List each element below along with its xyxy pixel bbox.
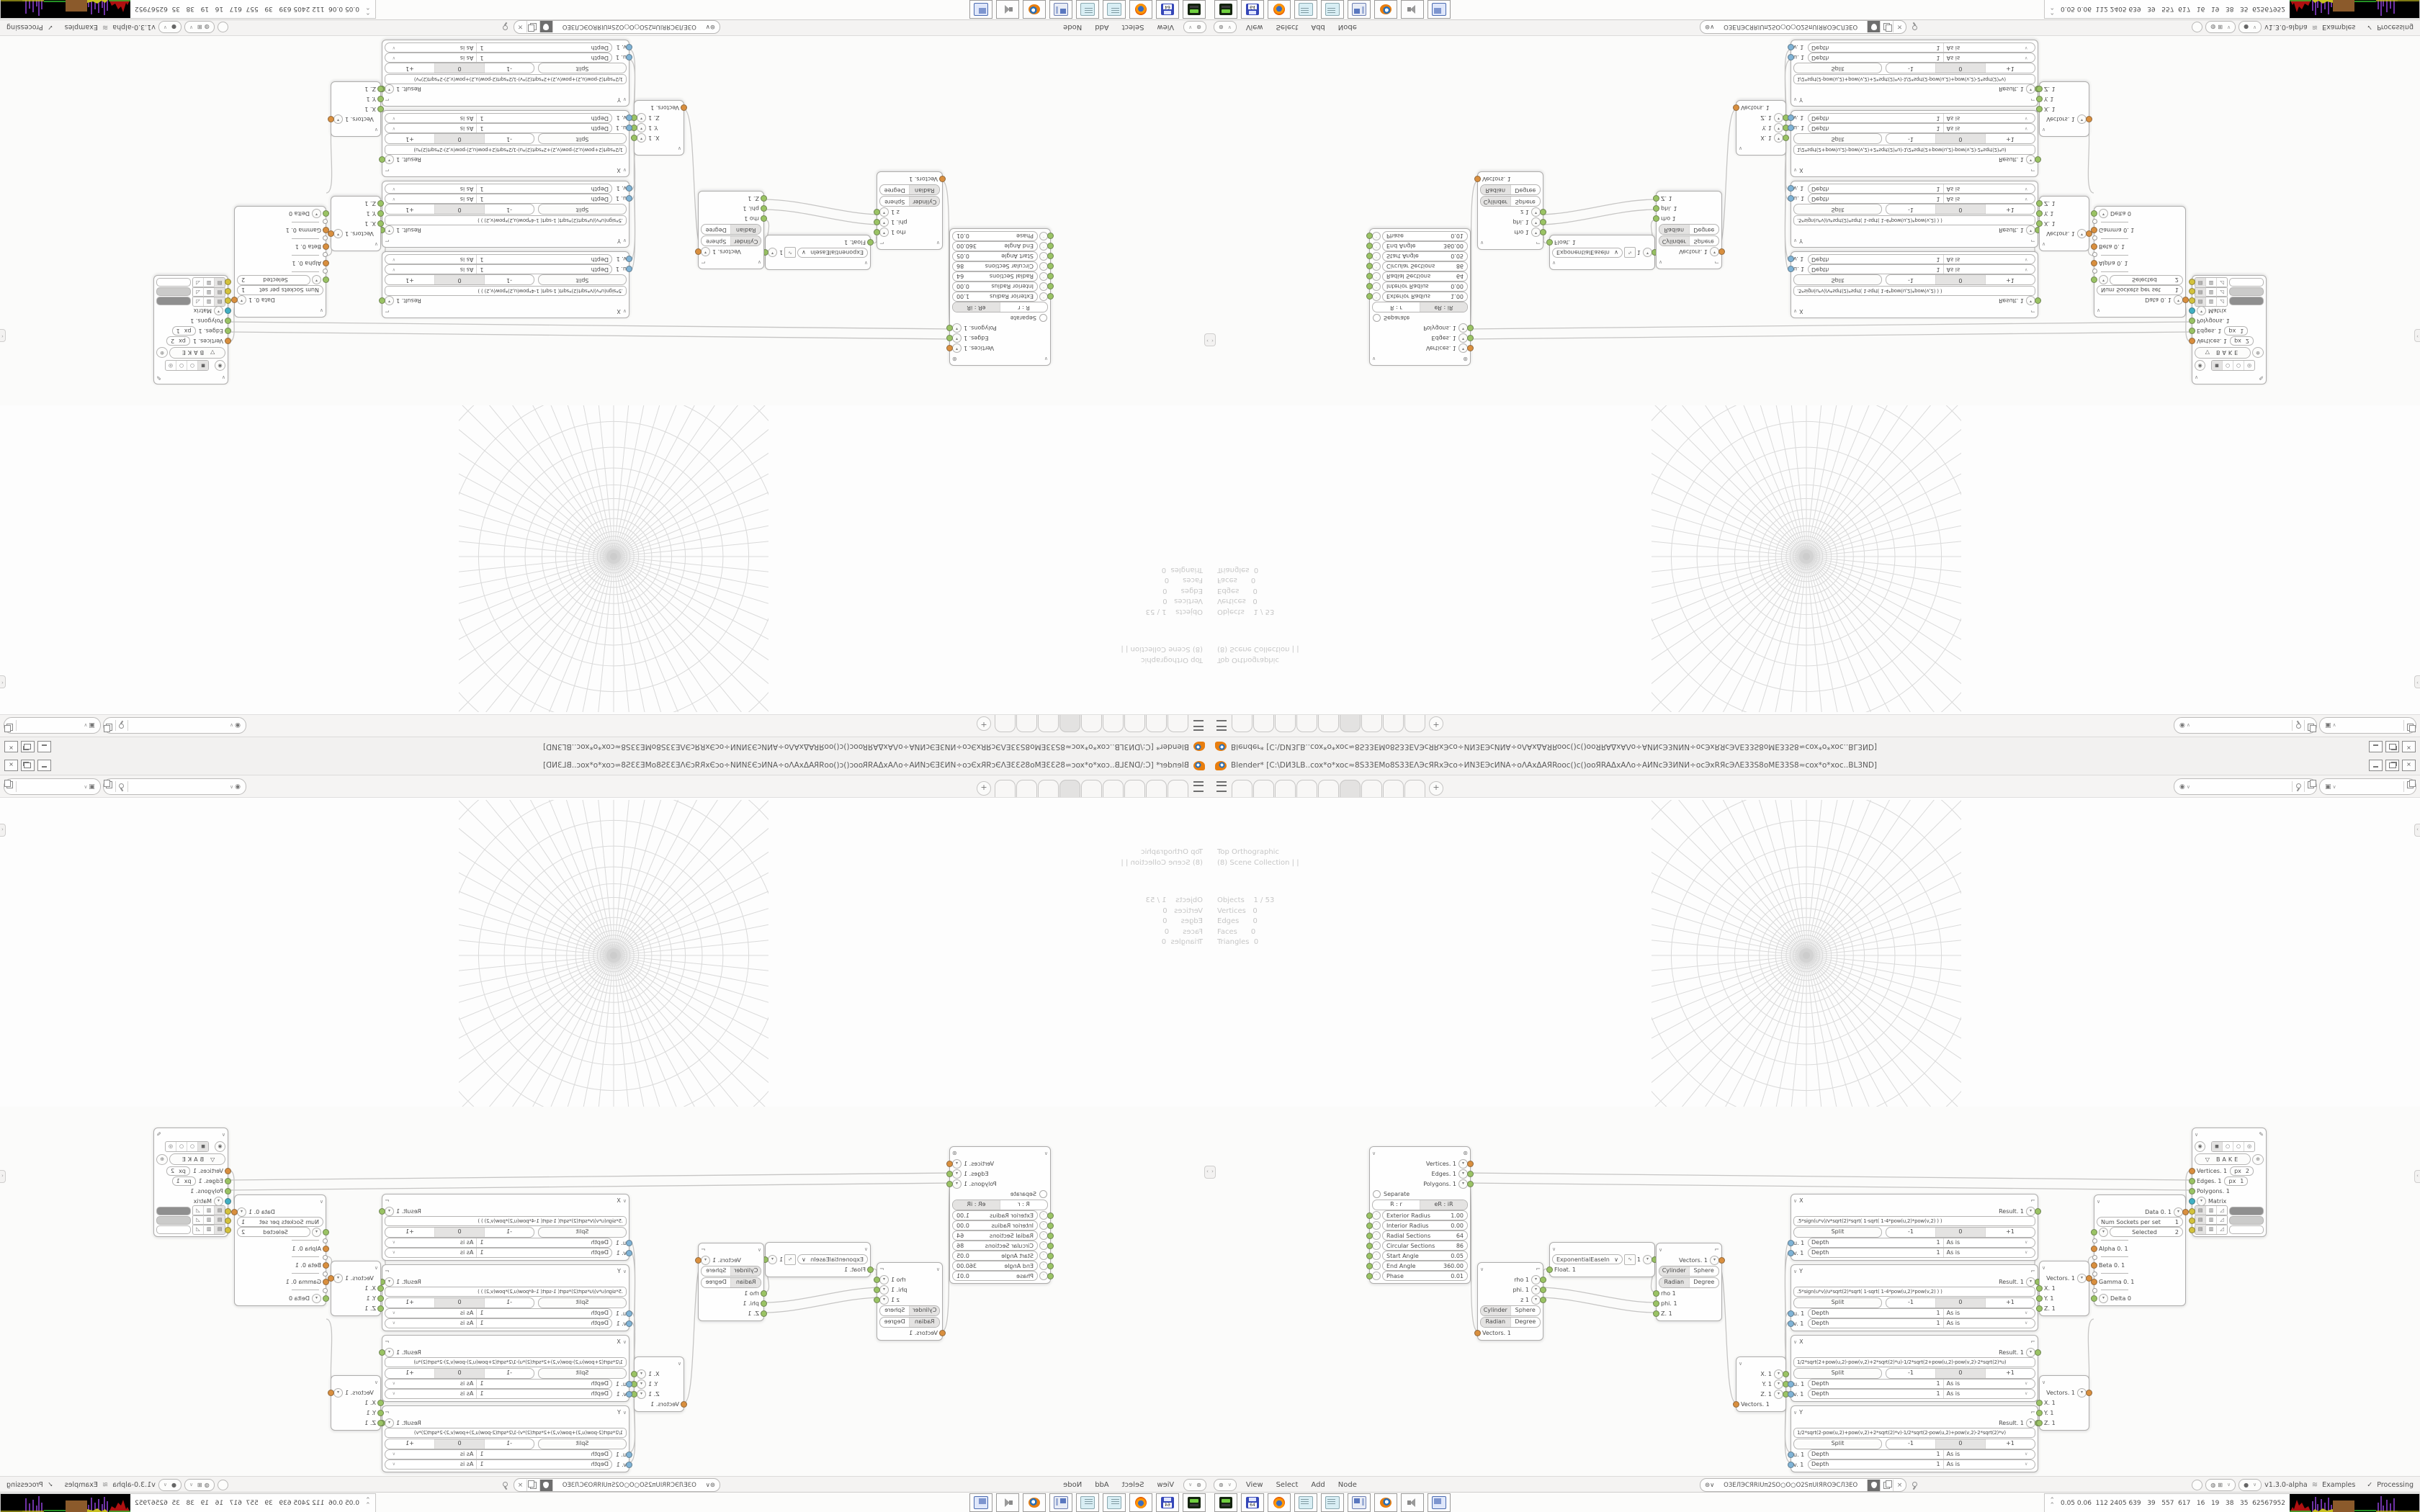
node-sidebar-toggle[interactable]: ‹ [2414,329,2420,342]
depth-selector[interactable]: Depth1As is∨ [385,53,612,63]
workspace-tab[interactable] [1296,780,1317,797]
taskbar-icon-floppy-64[interactable]: 64 [1156,0,1179,19]
color-swatch[interactable] [156,279,191,287]
segmented-control[interactable]: RadianDegree [1480,185,1541,196]
menu-hamburger-icon[interactable] [1193,781,1204,792]
taskbar-icon-image-viewer[interactable] [1348,0,1371,19]
depth-selector[interactable]: Depth1As is∨ [1808,1389,2035,1399]
bake-settings-button[interactable]: ⊕ [2252,1154,2264,1165]
formula-input[interactable]: 1/2*sqrt(2-pow(u,2)+pow(v,2)+2*sqrt(2)*v… [1793,74,2035,84]
node-menu-node[interactable]: Node [1338,24,1357,32]
workspace-tab[interactable] [1232,715,1252,732]
px-field[interactable]: px1 [172,1176,196,1186]
viewport-3d[interactable]: Top Orthographic (8) Scene Collection | … [0,798,1210,1107]
node-menu-add[interactable]: Add [1095,1481,1108,1489]
workspace-tab[interactable] [1318,780,1339,797]
workspace-tab[interactable] [1103,780,1124,797]
wrap-selector[interactable]: -10+1 [385,204,534,215]
formula-input[interactable]: .5*sign(u*v)/u*sqrt(2)*sqrt( 1-sqrt( 1-4… [385,215,627,225]
formula-input[interactable]: 1/2*sqrt(2+pow(u,2)-pow(v,2)+2*sqrt(2)*u… [385,145,627,155]
formula-input[interactable]: 1/2*sqrt(2+pow(u,2)-pow(v,2)+2*sqrt(2)*u… [1793,1357,2035,1367]
segmented-control[interactable]: CylinderSphere [879,197,940,207]
workspace-tab[interactable] [1016,780,1037,797]
number-field-phase[interactable]: Phase0.01 [952,1271,1038,1281]
bake-settings-button[interactable]: ⊕ [156,348,168,359]
taskbar-icon-notepad[interactable] [1103,1493,1126,1512]
unlink-tree-button[interactable]: × [1893,1480,1906,1491]
socket-menu-button[interactable]: ▾ [879,1275,889,1284]
formula-input[interactable]: 1/2*sqrt(2-pow(u,2)+pow(v,2)+2*sqrt(2)*v… [385,74,627,84]
node-vector-out[interactable]: ∨X. 1▾Y. 1▾Z. 1▾Vectors. 1 [634,100,684,156]
color-swatch[interactable] [2229,288,2264,297]
depth-selector[interactable]: Depth1As is∨ [385,113,612,123]
split-button[interactable]: Split [538,1227,627,1238]
bake-button[interactable]: ▽BAKE [2195,1153,2251,1165]
depth-selector[interactable]: Depth1As is∨ [1808,254,2035,264]
color-swatch[interactable] [156,288,191,297]
number-field-start-angle[interactable]: Start Angle0.05 [952,1251,1038,1261]
depth-selector[interactable]: Depth1As is∨ [385,123,612,133]
node-formula-y1[interactable]: ∨Y⌐Result. 1▾.5*sign(u*v)/u*sqrt(2)*sqrt… [1791,1264,2038,1331]
number-field-start-angle[interactable]: Start Angle0.05 [1382,1251,1468,1261]
node-vector-in-1[interactable]: ∨Vectors. 1▾X. 1Y. 1Z. 1 [2039,196,2089,251]
node-easing[interactable]: ∨ExponentialEaseIn∨∿1▾Float. 1 [765,235,871,270]
curve-preview-button[interactable]: ∿ [784,248,796,258]
socket-menu-button[interactable]: ▾ [879,1295,889,1305]
socket-menu-button[interactable]: ▾ [637,134,646,143]
socket-menu-button[interactable]: ▾ [385,1418,394,1428]
node-snap-selector[interactable]: ◍⊞∨ [2205,1479,2236,1491]
socket-menu-button[interactable]: ▾ [385,156,394,165]
node-easing[interactable]: ∨ExponentialEaseIn∨∿1▾Float. 1 [1549,235,1655,270]
socket-menu-button[interactable]: ▾ [214,1197,223,1206]
toggle-separate[interactable]: Separate [1372,313,1468,323]
depth-selector[interactable]: Depth1As is∨ [385,1379,612,1389]
node-editor[interactable]: › ‹ ∨⊛Vertices. 1▾Edges. 1▾Polygons. 1▾S… [1210,36,2420,392]
node-vector-out[interactable]: ∨X. 1▾Y. 1▾Z. 1▾Vectors. 1 [1736,100,1786,156]
duplicate-tree-button[interactable] [1880,22,1893,33]
display-mode-buttons[interactable]: ◼○○◎ [2211,361,2255,372]
socket-menu-button[interactable]: ▾ [385,85,394,94]
new-scene-button[interactable] [104,781,116,792]
workspace-tab[interactable] [1253,715,1274,732]
new-layer-button[interactable] [2403,781,2416,792]
node-polar-in[interactable]: ∨⌐Vectors. 1▾CylinderSphereRadianDegreer… [698,191,764,269]
node-easing[interactable]: ∨ExponentialEaseIn∨∿1▾Float. 1 [1549,1242,1655,1277]
workspace-tab[interactable] [1340,780,1361,797]
node-input-switch[interactable]: ∨Data 0. 1▾Num Sockets per set1▾Selected… [2094,206,2186,318]
socket-menu-button[interactable]: ▾ [2099,1294,2108,1303]
node-vector-in-2[interactable]: ∨Vectors. 1▾X. 1Y. 1Z. 1 [2039,81,2089,137]
wrap-selector[interactable]: -10+1 [1886,275,2035,286]
menu-hamburger-icon[interactable] [1216,781,1227,792]
node-menu-select[interactable]: Select [1122,24,1144,32]
workspace-tab[interactable] [1081,780,1102,797]
number-field-end-angle[interactable]: End Angle360.00 [952,1261,1038,1271]
monitor-expand-icon[interactable]: ⌃⌃ [365,1498,371,1508]
node-toolbar-toggle[interactable]: › [1210,333,1216,346]
node-vector-in-2[interactable]: ∨Vectors. 1▾X. 1Y. 1Z. 1 [331,1375,381,1431]
node-vector-in-1[interactable]: ∨Vectors. 1▾X. 1Y. 1Z. 1 [331,196,381,251]
socket-menu-button[interactable]: ▾ [214,307,223,316]
depth-selector[interactable]: Depth1As is∨ [1808,1318,2035,1328]
px-field[interactable]: px1 [2224,327,2248,336]
segmented-control[interactable]: RadianDegree [1659,1277,1719,1288]
socket-menu-button[interactable]: ▾ [312,1294,321,1303]
unlink-tree-button[interactable]: × [1893,22,1906,33]
number-field-interior-radius[interactable]: Interior Radius0.00 [952,282,1038,292]
depth-selector[interactable]: Depth1As is∨ [1808,53,2035,63]
viewer-activate-button[interactable]: ◉ [215,1141,225,1152]
number-field-phase[interactable]: Phase0.01 [952,231,1038,241]
node-editor-type-button[interactable]: ⊛∨ [1214,22,1237,34]
wrap-selector[interactable]: -10+1 [1886,1439,2035,1449]
monitor-expand-icon[interactable]: ⌃⌃ [2049,1498,2055,1508]
examples-menu[interactable]: Examples [65,24,98,32]
taskbar-icon-image-viewer[interactable] [1049,1493,1072,1512]
toggle-separate[interactable]: Separate [952,313,1048,323]
node-formula-x1[interactable]: ∨X⌐Result. 1▾.5*sign(u*v)/v*sqrt(2)*sqrt… [382,251,629,318]
node-formula-y2[interactable]: ∨Y⌐Result. 1▾1/2*sqrt(2-pow(u,2)+pow(v,2… [1791,40,2038,107]
socket-menu-button[interactable]: ▾ [385,226,394,235]
node-vector-in-1[interactable]: ∨Vectors. 1▾X. 1Y. 1Z. 1 [2039,1261,2089,1316]
segmented-control[interactable]: R : reR : iR [952,302,1048,313]
split-button[interactable]: Split [1793,204,1882,215]
workspace-tab[interactable] [1124,780,1145,797]
depth-selector[interactable]: Depth1As is∨ [385,1248,612,1258]
depth-selector[interactable]: Depth1As is∨ [1808,1248,2035,1258]
wrap-selector[interactable]: -10+1 [385,1368,534,1379]
workspace-tab[interactable] [995,715,1016,732]
curve-preview-button[interactable]: ∿ [1624,248,1636,258]
pin-icon[interactable] [2292,781,2304,792]
node-vector-out[interactable]: ∨X. 1▾Y. 1▾Z. 1▾Vectors. 1 [634,1356,684,1412]
depth-selector[interactable]: Depth1As is∨ [385,1449,612,1459]
workspace-tab[interactable] [1275,780,1296,797]
taskbar-icon-display[interactable] [969,0,992,19]
viewport-sidebar-toggle[interactable]: ‹ [2414,824,2420,837]
wrap-selector[interactable]: -10+1 [1886,1368,2035,1379]
number-field-interior-radius[interactable]: Interior Radius0.00 [1382,1220,1468,1230]
add-workspace-button[interactable]: + [977,781,991,796]
node-menu-add[interactable]: Add [1095,24,1108,32]
number-field-phase[interactable]: Phase0.01 [1382,231,1468,241]
node-sidebar-toggle[interactable]: ‹ [0,1170,6,1183]
number-field-selected[interactable]: Selected2 [2110,1227,2183,1237]
socket-menu-button[interactable]: ▾ [637,1380,646,1389]
workspace-tab[interactable] [1168,715,1188,732]
pin-icon[interactable] [116,781,128,792]
formula-input[interactable]: 1/2*sqrt(2+pow(u,2)-pow(v,2)+2*sqrt(2)*u… [1793,145,2035,155]
viewer-activate-button[interactable]: ◉ [2195,361,2205,372]
socket-menu-button[interactable]: ▾ [333,1388,343,1398]
socket-menu-button[interactable]: ▾ [637,1369,646,1379]
node-toolbar-toggle[interactable]: › [1210,1166,1216,1179]
node-ring[interactable]: ∨⊛Vertices. 1▾Edges. 1▾Polygons. 1▾Separ… [1369,1146,1471,1284]
formula-input[interactable]: .5*sign(u*v)/v*sqrt(2)*sqrt( 1-sqrt( 1-4… [1793,1216,2035,1226]
depth-selector[interactable]: Depth1As is∨ [385,264,612,274]
color-mode-buttons[interactable]: ▤▥◿ [192,1224,225,1235]
workspace-tab[interactable] [1059,780,1080,797]
workspace-tab[interactable] [1383,715,1404,732]
number-field-num-sockets[interactable]: Num Sockets per set1 [2097,1217,2183,1227]
split-button[interactable]: Split [538,134,627,145]
number-field-end-angle[interactable]: End Angle360.00 [1382,1261,1468,1271]
wrap-selector[interactable]: -10+1 [385,1297,534,1308]
depth-selector[interactable]: Depth1As is∨ [1808,1308,2035,1318]
workspace-tab[interactable] [1124,715,1145,732]
segmented-control[interactable]: R : reR : iR [952,1200,1048,1210]
color-swatch[interactable] [2229,279,2264,287]
wrap-selector[interactable]: -10+1 [385,63,534,74]
fake-user-button[interactable] [1867,1480,1880,1491]
workspace-tab[interactable] [1103,715,1124,732]
node-polar-in[interactable]: ∨⌐Vectors. 1▾CylinderSphereRadianDegreer… [1656,1243,1722,1321]
node-toolbar-toggle[interactable]: › [1204,1166,1210,1179]
segmented-control[interactable]: CylinderSphere [879,1305,940,1316]
workspace-tab[interactable] [1038,780,1059,797]
segmented-control[interactable]: CylinderSphere [1480,197,1541,207]
formula-input[interactable]: .5*sign(u*v)/u*sqrt(2)*sqrt( 1-sqrt( 1-4… [1793,215,2035,225]
new-layer-button[interactable] [4,720,17,731]
bake-settings-button[interactable]: ⊕ [156,1154,168,1165]
taskbar-icon-image-viewer[interactable] [1049,0,1072,19]
socket-menu-button[interactable]: ▾ [312,276,321,285]
socket-menu-button[interactable]: ▾ [879,1285,889,1295]
split-button[interactable]: Split [1793,63,1882,74]
taskbar-icon-notepad[interactable] [1076,0,1099,19]
taskbar-icon-firefox[interactable] [1129,0,1152,19]
scene-selector[interactable]: ◉∨ [103,778,246,795]
taskbar-icon-display[interactable] [1428,1493,1451,1512]
depth-selector[interactable]: Depth1As is∨ [1808,194,2035,204]
taskbar-icon-notepad[interactable] [1294,0,1317,19]
wrap-selector[interactable]: -10+1 [1886,1297,2035,1308]
depth-selector[interactable]: Depth1As is∨ [1808,1238,2035,1248]
split-button[interactable]: Split [1793,1439,1882,1449]
number-field-num-sockets[interactable]: Num Sockets per set1 [237,285,323,295]
node-menu-view[interactable]: View [1246,24,1263,32]
node-formula-x2[interactable]: ∨X⌐Result. 1▾1/2*sqrt(2+pow(u,2)-pow(v,2… [382,110,629,177]
add-workspace-button[interactable]: + [1429,781,1443,796]
node-formula-y1[interactable]: ∨Y⌐Result. 1▾.5*sign(u*v)/u*sqrt(2)*sqrt… [382,1264,629,1331]
socket-menu-button[interactable]: ▾ [879,228,889,238]
restore-button[interactable] [2385,741,2399,752]
node-tree-selector[interactable]: ⊚∨ ОЗЕЛЭСЯRIUπ2SO○O○O2SπUIЯRОЭСЛЗЕО × [1700,20,1906,34]
taskbar-icon-system-monitor[interactable] [1183,0,1206,19]
viewport-3d[interactable]: Top Orthographic (8) Scene Collection | … [1210,405,2420,714]
segmented-control[interactable]: R : reR : iR [1372,302,1468,313]
split-button[interactable]: Split [1793,1368,1882,1379]
node-viewer-draw[interactable]: ∨✎◉◼○○◎▽BAKE⊕Vertices. 1px2Edges. 1px1Po… [2192,1128,2267,1237]
depth-selector[interactable]: Depth1As is∨ [385,1308,612,1318]
segmented-control[interactable]: RadianDegree [879,1317,940,1328]
color-swatch[interactable] [2229,1207,2264,1215]
node-overlay-selector[interactable]: ●∨ [2238,22,2262,34]
segmented-control[interactable]: RadianDegree [1480,1317,1541,1328]
node-editor-type-button[interactable]: ⊛∨ [1214,1479,1237,1491]
color-mode-buttons[interactable]: ▤▥◿ [192,296,225,307]
pin-tree-icon[interactable] [503,24,508,32]
number-field-circular-sections[interactable]: Circular Sections86 [952,261,1038,271]
taskbar-icon-firefox[interactable] [1129,1493,1152,1512]
socket-menu-button[interactable]: ▾ [952,324,962,333]
processing-toggle[interactable]: Processing [6,24,43,32]
node-viewer-draw[interactable]: ∨✎◉◼○○◎▽BAKE⊕Vertices. 1px2Edges. 1px1Po… [153,275,228,384]
node-editor-type-button[interactable]: ⊛∨ [1183,22,1206,34]
taskbar-icon-system-monitor[interactable] [1214,1493,1237,1512]
node-viewer-draw[interactable]: ∨✎◉◼○○◎▽BAKE⊕Vertices. 1px2Edges. 1px1Po… [153,1128,228,1237]
number-field-radial-sections[interactable]: Radial Sections64 [952,271,1038,282]
viewlayer-selector[interactable]: ▣∨ [2319,778,2416,795]
taskbar-icon-floppy-64[interactable]: 64 [1156,1493,1179,1512]
workspace-tab[interactable] [1404,780,1425,797]
taskbar-icon-notepad[interactable] [1103,0,1126,19]
socket-menu-button[interactable]: ▾ [952,334,962,343]
taskbar-icon-notepad[interactable] [1321,1493,1344,1512]
depth-selector[interactable]: Depth1As is∨ [1808,42,2035,53]
taskbar-icon-speaker[interactable] [1401,0,1424,19]
depth-selector[interactable]: Depth1As is∨ [1808,123,2035,133]
node-editor-type-button[interactable]: ⊛∨ [1183,1479,1206,1491]
segmented-control[interactable]: CylinderSphere [701,236,761,247]
socket-menu-button[interactable]: ▾ [952,1169,962,1179]
taskbar-icon-speaker[interactable] [996,0,1019,19]
taskbar-icon-floppy-64[interactable]: 64 [1241,0,1264,19]
number-field-start-angle[interactable]: Start Angle0.05 [952,251,1038,261]
bake-button[interactable]: ▽BAKE [169,347,225,359]
depth-selector[interactable]: Depth1As is∨ [385,184,612,194]
number-field-phase[interactable]: Phase0.01 [1382,1271,1468,1281]
workspace-tab[interactable] [1232,780,1252,797]
node-ring[interactable]: ∨⊛Vertices. 1▾Edges. 1▾Polygons. 1▾Separ… [1369,228,1471,366]
curve-preview-button[interactable]: ∿ [784,1254,796,1265]
scene-selector[interactable]: ◉∨ [2174,778,2317,795]
workspace-tab[interactable] [1383,780,1404,797]
workspace-tab[interactable] [1318,715,1339,732]
examples-menu[interactable]: Examples [2322,24,2355,32]
node-formula-y1[interactable]: ∨Y⌐Result. 1▾.5*sign(u*v)/u*sqrt(2)*sqrt… [382,181,629,248]
socket-menu-button[interactable]: ▾ [385,1207,394,1216]
color-mode-buttons[interactable]: ▤▥◿ [2195,287,2228,297]
depth-selector[interactable]: Depth1As is∨ [1808,1459,2035,1470]
wrap-selector[interactable]: -10+1 [385,1439,534,1449]
socket-menu-button[interactable]: ▾ [2099,210,2108,219]
node-menu-select[interactable]: Select [1276,24,1299,32]
workspace-tab[interactable] [1340,715,1361,732]
wrap-selector[interactable]: -10+1 [1886,134,2035,145]
node-sidebar-toggle[interactable]: ‹ [2414,1170,2420,1183]
parent-tree-button[interactable] [2192,1480,2202,1490]
workspace-tab[interactable] [1361,780,1382,797]
taskbar-icon-display[interactable] [1428,0,1451,19]
workspace-tab[interactable] [1361,715,1382,732]
color-mode-buttons[interactable]: ▤▥◿ [2195,1224,2228,1235]
socket-menu-button[interactable]: ▾ [701,1256,710,1265]
node-polar-out[interactable]: ∨⌐rho 1▾phi. 1▾z 1▾CylinderSphereRadianD… [877,1262,943,1341]
minimize-button[interactable] [2369,760,2383,771]
node-ring[interactable]: ∨⊛Vertices. 1▾Edges. 1▾Polygons. 1▾Separ… [949,228,1051,366]
color-swatch[interactable] [156,1225,191,1234]
node-polar-in[interactable]: ∨⌐Vectors. 1▾CylinderSphereRadianDegreer… [1656,191,1722,269]
parent-tree-button[interactable] [2192,22,2202,33]
close-button[interactable]: × [2402,741,2416,752]
wrap-selector[interactable]: -10+1 [1886,63,2035,74]
socket-menu-button[interactable]: ▾ [312,210,321,219]
taskbar-icon-blender[interactable] [1023,1493,1046,1512]
number-field-selected[interactable]: Selected2 [237,275,310,285]
taskbar-icon-image-viewer[interactable] [1348,1493,1371,1512]
px-field[interactable]: px2 [2230,337,2254,346]
socket-menu-button[interactable]: ▾ [333,1274,343,1283]
number-field-exterior-radius[interactable]: Exterior Radius1.00 [1382,292,1468,302]
node-vector-in-2[interactable]: ∨Vectors. 1▾X. 1Y. 1Z. 1 [2039,1375,2089,1431]
formula-input[interactable]: .5*sign(u*v)/u*sqrt(2)*sqrt( 1-sqrt( 1-4… [385,1287,627,1297]
pin-icon[interactable] [116,720,128,731]
depth-selector[interactable]: Depth1As is∨ [385,1459,612,1470]
depth-selector[interactable]: Depth1As is∨ [385,194,612,204]
new-scene-button[interactable] [2304,781,2316,792]
toggle-separate[interactable]: Separate [1372,1189,1468,1199]
node-polar-out[interactable]: ∨⌐rho 1▾phi. 1▾z 1▾CylinderSphereRadianD… [1477,171,1543,250]
node-formula-x2[interactable]: ∨X⌐Result. 1▾1/2*sqrt(2+pow(u,2)-pow(v,2… [1791,110,2038,177]
socket-menu-button[interactable]: ▾ [2197,1197,2206,1206]
formula-input[interactable]: .5*sign(u*v)/v*sqrt(2)*sqrt( 1-sqrt( 1-4… [385,286,627,296]
workspace-tab[interactable] [995,780,1016,797]
socket-menu-button[interactable]: ▾ [385,297,394,306]
fake-user-button[interactable] [540,22,553,33]
viewport-sidebar-toggle[interactable]: ‹ [2414,675,2420,688]
taskbar-icon-firefox[interactable] [1268,1493,1291,1512]
duplicate-tree-button[interactable] [527,22,540,33]
node-ring[interactable]: ∨⊛Vertices. 1▾Edges. 1▾Polygons. 1▾Separ… [949,1146,1051,1284]
split-button[interactable]: Split [538,204,627,215]
viewer-activate-button[interactable]: ◉ [215,361,225,372]
wrap-selector[interactable]: -10+1 [1886,1227,2035,1238]
processing-toggle[interactable]: Processing [2377,1481,2414,1489]
wrap-selector[interactable]: -10+1 [1886,204,2035,215]
restore-button[interactable] [2385,760,2399,771]
number-field-circular-sections[interactable]: Circular Sections86 [1382,261,1468,271]
number-field-radial-sections[interactable]: Radial Sections64 [952,1230,1038,1241]
socket-menu-button[interactable]: ▾ [952,344,962,354]
px-field[interactable]: px1 [2224,1176,2248,1186]
easing-mode-selector[interactable]: ExponentialEaseIn∨ [1552,248,1623,258]
socket-menu-button[interactable]: ▾ [2197,307,2206,316]
viewlayer-selector[interactable]: ▣∨ [4,778,101,795]
number-field-selected[interactable]: Selected2 [237,1227,310,1237]
taskbar-icon-system-monitor[interactable] [1214,0,1237,19]
bake-settings-button[interactable]: ⊕ [2252,348,2264,359]
node-tree-selector[interactable]: ⊚∨ ОЗЕЛЭСЯRIUπ2SO○O○O2SπUIЯRОЭСЛЗЕО × [1700,1478,1906,1492]
node-menu-node[interactable]: Node [1338,1481,1357,1489]
segmented-control[interactable]: CylinderSphere [1659,1266,1719,1277]
node-menu-select[interactable]: Select [1122,1481,1144,1489]
px-field[interactable]: px2 [2230,1166,2254,1176]
workspace-tab[interactable] [1296,715,1317,732]
workspace-tab[interactable] [1146,715,1167,732]
minimize-button[interactable] [2369,741,2383,752]
workspace-tab[interactable] [1253,780,1274,797]
duplicate-tree-button[interactable] [527,1480,540,1491]
color-swatch[interactable] [2229,297,2264,306]
depth-selector[interactable]: Depth1As is∨ [385,254,612,264]
color-swatch[interactable] [156,1216,191,1225]
viewlayer-selector[interactable]: ▣∨ [4,717,101,734]
formula-input[interactable]: .5*sign(u*v)/u*sqrt(2)*sqrt( 1-sqrt( 1-4… [1793,1287,2035,1297]
split-button[interactable]: Split [1793,275,1882,286]
viewlayer-selector[interactable]: ▣∨ [2319,717,2416,734]
